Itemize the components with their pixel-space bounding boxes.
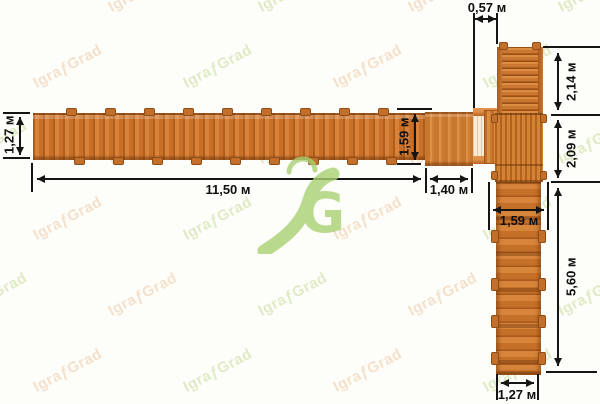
post-tab bbox=[538, 230, 546, 243]
watermark-text: IgraƒGrad bbox=[555, 0, 600, 16]
post-tab bbox=[144, 108, 155, 116]
arrowhead bbox=[554, 102, 562, 110]
ext-line bbox=[31, 163, 33, 192]
post-tab bbox=[261, 108, 272, 116]
arrowhead bbox=[554, 170, 562, 178]
end-platform bbox=[425, 112, 473, 166]
ext-line bbox=[543, 46, 600, 48]
post-tab bbox=[339, 108, 350, 116]
ext-line bbox=[551, 181, 600, 183]
post-tab bbox=[491, 352, 499, 365]
ext-line bbox=[496, 13, 498, 44]
post-tab bbox=[538, 278, 546, 291]
post-tab bbox=[499, 42, 508, 50]
post-tab bbox=[113, 157, 124, 165]
diagram-canvas: IgraƒGradIgraƒGradIgraƒGradIgraƒGradIgra… bbox=[0, 0, 600, 404]
watermark-text: IgraƒGrad bbox=[105, 269, 180, 319]
post-tab bbox=[540, 114, 547, 123]
watermark-text: IgraƒGrad bbox=[105, 0, 180, 16]
watermark-text: IgraƒGrad bbox=[0, 0, 30, 16]
post-tab bbox=[300, 108, 311, 116]
post-tab bbox=[183, 108, 194, 116]
dim-label-lower-walkway-end-width: 1,27 м bbox=[479, 387, 555, 402]
watermark-text: IgraƒGrad bbox=[30, 41, 105, 91]
watermark-text: IgraƒGrad bbox=[255, 0, 330, 16]
post-tab bbox=[222, 108, 233, 116]
dim-label-lower-walkway-width: 1,59 м bbox=[481, 213, 557, 228]
arrowhead bbox=[554, 358, 562, 366]
ext-line bbox=[397, 108, 432, 110]
watermark-text: IgraƒGrad bbox=[180, 345, 255, 395]
arrowhead bbox=[526, 379, 534, 387]
post-tab bbox=[491, 278, 499, 291]
logo-letter: G bbox=[300, 181, 345, 245]
ext-line bbox=[397, 163, 421, 165]
arrowhead bbox=[501, 379, 509, 387]
ext-line bbox=[546, 371, 597, 373]
arrowhead bbox=[37, 175, 45, 183]
watermark-text: IgraƒGrad bbox=[30, 193, 105, 243]
post-tab bbox=[152, 157, 163, 165]
post-tab bbox=[74, 157, 85, 165]
arrowhead bbox=[411, 114, 419, 122]
brand-logo: G bbox=[256, 148, 354, 254]
dim-line bbox=[37, 178, 421, 180]
arrowhead bbox=[16, 147, 24, 155]
ext-line bbox=[551, 114, 600, 116]
arrowhead bbox=[554, 188, 562, 196]
dim-label-ladder-length: 2,14 м bbox=[563, 56, 579, 108]
arrowhead bbox=[554, 53, 562, 61]
dim-label-lower-walkway-length: 5,60 м bbox=[563, 251, 579, 303]
post-tab bbox=[532, 42, 541, 50]
post-tab bbox=[66, 108, 77, 116]
post-tab bbox=[491, 114, 498, 123]
dim-label-top-connector-width: 0,57 м bbox=[450, 0, 524, 15]
dim-line bbox=[557, 188, 559, 366]
post-tab bbox=[538, 352, 546, 365]
ext-line bbox=[473, 13, 475, 108]
post-tab bbox=[491, 315, 499, 328]
ladder-rail-left bbox=[497, 47, 502, 113]
tower-deck bbox=[495, 113, 543, 182]
watermark-text: IgraƒGrad bbox=[255, 269, 330, 319]
post-tab bbox=[105, 108, 116, 116]
dim-label-deck-length: 2,09 м bbox=[563, 123, 579, 175]
dim-label-platform-length: 1,40 м bbox=[411, 182, 487, 197]
dim-label-walkway-width: 1,27 м bbox=[1, 112, 17, 158]
arrowhead bbox=[554, 120, 562, 128]
watermark-text: IgraƒGrad bbox=[180, 193, 255, 243]
dim-label-platform-width: 1,59 м bbox=[396, 114, 412, 160]
watermark-text: IgraƒGrad bbox=[0, 269, 30, 319]
arrowhead bbox=[475, 15, 483, 23]
post-tab bbox=[538, 315, 546, 328]
watermark-text: IgraƒGrad bbox=[30, 345, 105, 395]
post-tab bbox=[191, 157, 202, 165]
watermark-text: IgraƒGrad bbox=[330, 41, 405, 91]
arrowhead bbox=[411, 152, 419, 160]
watermark-text: IgraƒGrad bbox=[180, 41, 255, 91]
post-tab bbox=[540, 171, 547, 180]
arrowhead bbox=[488, 15, 496, 23]
post-tab bbox=[491, 171, 498, 180]
logo-handle bbox=[289, 159, 315, 172]
post-tab bbox=[230, 157, 241, 165]
ladder-rail-right bbox=[538, 47, 543, 113]
ladder-section bbox=[497, 47, 543, 113]
arrowhead bbox=[16, 117, 24, 125]
watermark-text: IgraƒGrad bbox=[330, 345, 405, 395]
post-tab bbox=[378, 108, 389, 116]
watermark-text: IgraƒGrad bbox=[405, 269, 480, 319]
horizontal-walkway bbox=[33, 113, 425, 160]
post-tab bbox=[491, 230, 499, 243]
